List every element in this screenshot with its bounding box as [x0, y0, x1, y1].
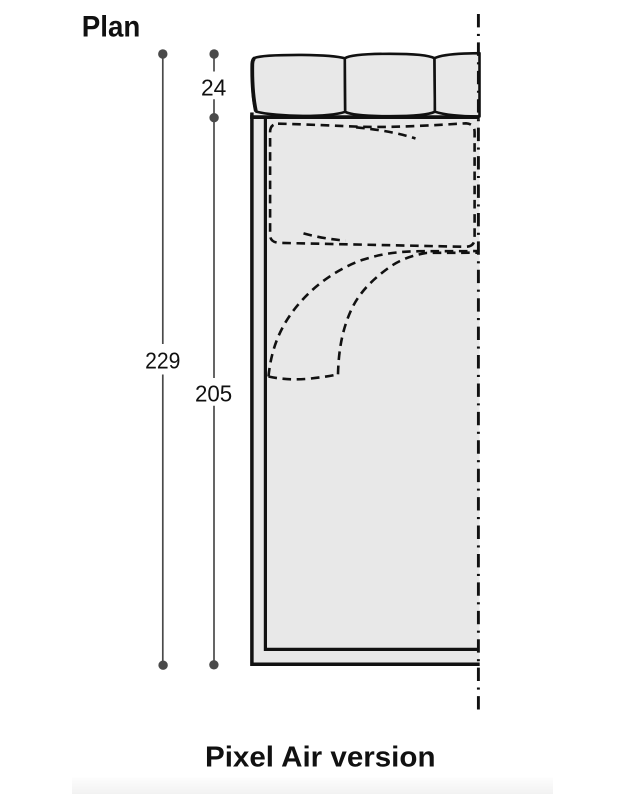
svg-text:229: 229 — [145, 348, 180, 374]
svg-text:205: 205 — [195, 381, 232, 407]
svg-text:Plan: Plan — [82, 11, 141, 44]
svg-text:24: 24 — [201, 74, 226, 100]
svg-text:Pixel Air version: Pixel Air version — [205, 742, 436, 774]
